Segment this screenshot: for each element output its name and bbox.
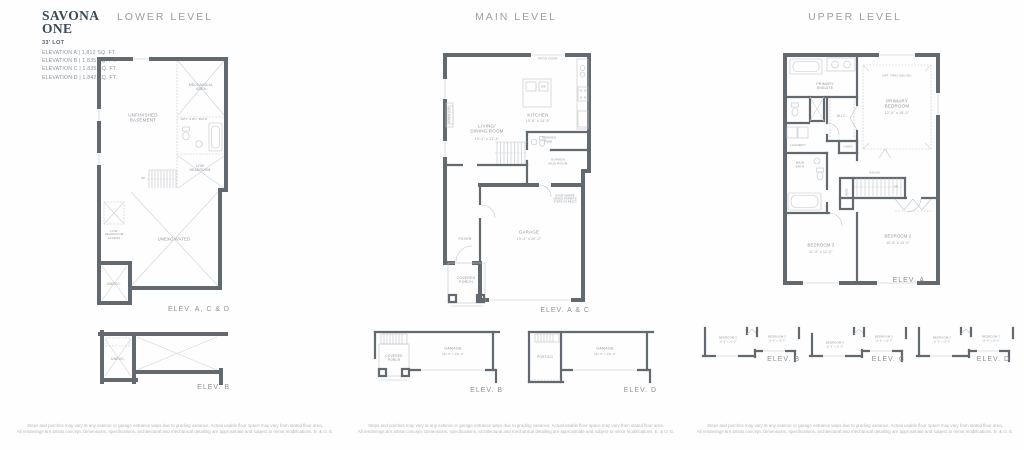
- covered-porch-b-label: COVERED PORCH: [385, 355, 402, 363]
- mechanical-area-label: MECHANICAL AREA: [189, 83, 213, 91]
- bedroom2-d-label: BEDROOM 2: [982, 335, 1000, 338]
- garage-dims: 19'-4" x 20'-0": [517, 237, 542, 241]
- upper-elev-d-label: ELEV. D: [940, 356, 1010, 363]
- low-headroom-label: LOW HEADROOM: [189, 165, 210, 173]
- kitchen-dims: 10'-6" x 14'-5": [526, 119, 551, 123]
- bedroom2-b-label: BEDROOM 2: [768, 335, 786, 338]
- bedroom3-b-label: BEDROOM 3: [719, 336, 737, 339]
- living-dining-label: LIVING/ DINING ROOM: [470, 124, 503, 135]
- unfinished-basement-label: UNFINISHED BASEMENT: [128, 113, 158, 124]
- bedroom3-d-dims: 11'-0" x 12'-0": [934, 341, 951, 344]
- low-headroom-access-label: LOW HEADROOM ACCESS: [105, 230, 124, 240]
- primary-bedroom-dims: 12'-0" x 18'-0": [885, 111, 910, 115]
- main-elev-ac-label: ELEV. A & C: [510, 307, 590, 314]
- upper-elev-a-label: ELEV. A: [845, 277, 925, 284]
- bedroom3-c-dims: 11'-0" x 12'-0": [827, 346, 844, 349]
- garage-b-label: GARAGE: [444, 347, 461, 352]
- bedroom2-c-dims: 10'-6" x 13'-0": [875, 340, 892, 343]
- covered-porch-label: COVERED PORCH: [457, 276, 476, 284]
- disclaimer-line1: Steps and porches may vary at any exteri…: [15, 423, 335, 429]
- disclaimer-line2: All renderings are artists concept. Dime…: [695, 429, 1015, 435]
- patio-door-label: PATIO DOOR: [538, 57, 557, 60]
- optional-bath-label: OPT. 3 PC. BATH: [181, 118, 208, 122]
- railing-label: RAILING: [870, 173, 881, 176]
- main-elev-b-label: ELEV. B: [433, 387, 503, 394]
- plan-title-line2: ONE: [42, 22, 99, 35]
- laundry-label: LAUNDRY: [790, 144, 806, 148]
- garage-d-label: GARAGE: [596, 347, 613, 352]
- disclaimer-line2: All renderings are artists concept. Dime…: [15, 429, 335, 435]
- elevation-a-sqft: ELEVATION A | 1,812 SQ. FT.: [42, 49, 117, 57]
- lower-elev-acd-label: ELEV. A, C & D: [150, 306, 230, 313]
- garage-label: GARAGE: [519, 229, 539, 234]
- living-dining-dims: 13'-1" x 21'-4": [475, 137, 500, 141]
- floor-plan-sheet: SAVONA ONE 33' LOT ELEVATION A | 1,812 S…: [0, 0, 1024, 450]
- bedroom2-c-label: BEDROOM 2: [875, 335, 893, 338]
- bedroom2-label: BEDROOM 2: [885, 233, 912, 238]
- garage-b-dims: 19'-4" x 20'-0": [442, 353, 464, 357]
- foyer-label: FOYER: [458, 237, 471, 241]
- unexcavated-label: UNEXCAVATED: [158, 236, 191, 241]
- stairs-up-label: UP: [141, 177, 146, 181]
- bedroom3-b-dims: 11'-0" x 12'-0": [720, 341, 737, 344]
- disclaimer-line1: Steps and porches may vary at any exteri…: [356, 423, 676, 429]
- dishwasher-label: DW: [541, 85, 546, 88]
- fireplace-label: FIREPLACE: [448, 107, 451, 123]
- main-level-elev-b-plan: GARAGE 19'-4" x 20'-0" COVERED PORCH: [373, 328, 503, 390]
- lower-level-heading: LOWER LEVEL: [95, 11, 235, 23]
- wic-label: W.I.C.: [837, 115, 847, 119]
- sunken-powder-label: SUNKEN PWD.: [542, 136, 556, 143]
- disclaimer-lower: Steps and porches may vary at any exteri…: [15, 423, 335, 434]
- bedroom3-label: BEDROOM 3: [808, 242, 835, 247]
- bedroom3-c-label: BEDROOM 3: [826, 341, 844, 344]
- unexc-label: UNEXC.: [107, 282, 121, 286]
- bedroom3-dims: 11'-0" x 12'-0": [809, 249, 833, 253]
- bedroom2-dims: 10'-6" x 13'-0": [886, 240, 910, 244]
- main-level-floor-plan: PATIO DOOR LIVING/ DINING ROOM 13'-1" x …: [443, 53, 591, 311]
- garage-d-dims: 19'-4" x 20'-0": [594, 353, 616, 357]
- main-level-elev-d-plan: PORTICO GARAGE 19'-4" x 20'-0": [527, 328, 657, 390]
- garage-door-note: DOOR WHERE GRADE PERMITS STEPS AS REQ'D: [553, 195, 576, 204]
- primary-bedroom-label: PRIMARY BEDROOM: [885, 99, 910, 110]
- lower-level-floor-plan: MECHANICAL AREA UNFINISHED BASEMENT OPT.…: [97, 57, 228, 307]
- sunken-mud-room-label: SUNKEN MUD ROOM: [548, 158, 567, 165]
- bedroom2-b-dims: 10'-6" x 13'-0": [768, 340, 785, 343]
- stairs-dn-label: DN: [894, 185, 898, 188]
- plan-title: SAVONA ONE: [42, 9, 99, 35]
- upper-level-plan-drawing: [783, 53, 941, 285]
- main-bath-label: MAIN BATH: [796, 161, 805, 168]
- disclaimer-line1: Steps and porches may vary at any exteri…: [695, 423, 1015, 429]
- disclaimer-upper: Steps and porches may vary at any exteri…: [695, 423, 1015, 434]
- lot-size-label: 33' LOT: [42, 40, 64, 46]
- bedroom3-d-label: BEDROOM 3: [933, 336, 951, 339]
- main-level-plan-drawing: [443, 53, 591, 311]
- linen-closet-label: LINEN: [845, 189, 848, 198]
- lower-elev-b-label: ELEV. B: [160, 384, 230, 391]
- upper-level-heading: UPPER LEVEL: [785, 11, 925, 23]
- upper-elev-b-label: ELEV. B: [730, 356, 800, 363]
- lower-level-plan-drawing: [97, 57, 228, 307]
- disclaimer-line2: All renderings are artists concept. Dime…: [356, 429, 676, 435]
- upper-elev-c-label: ELEV. C: [835, 356, 905, 363]
- lower-level-elev-b-plan: UNEXC.: [100, 330, 228, 385]
- upper-level-floor-plan: PRIMARY ENSUITE OPT. TRAY CEILING PRIMAR…: [783, 53, 941, 285]
- primary-ensuite-label: PRIMARY ENSUITE: [816, 82, 833, 90]
- kitchen-label: KITCHEN: [527, 112, 548, 117]
- unexc-b-label: UNEXC.: [111, 357, 125, 361]
- bedroom2-d-dims: 10'-6" x 13'-0": [982, 340, 999, 343]
- linen-label: LINEN: [844, 145, 853, 148]
- tray-ceiling-label: OPT. TRAY CEILING: [882, 74, 912, 77]
- portico-label: PORTICO: [537, 356, 553, 360]
- main-level-heading: MAIN LEVEL: [446, 11, 586, 23]
- disclaimer-main: Steps and porches may vary at any exteri…: [356, 423, 676, 434]
- main-elev-d-label: ELEV. D: [587, 387, 657, 394]
